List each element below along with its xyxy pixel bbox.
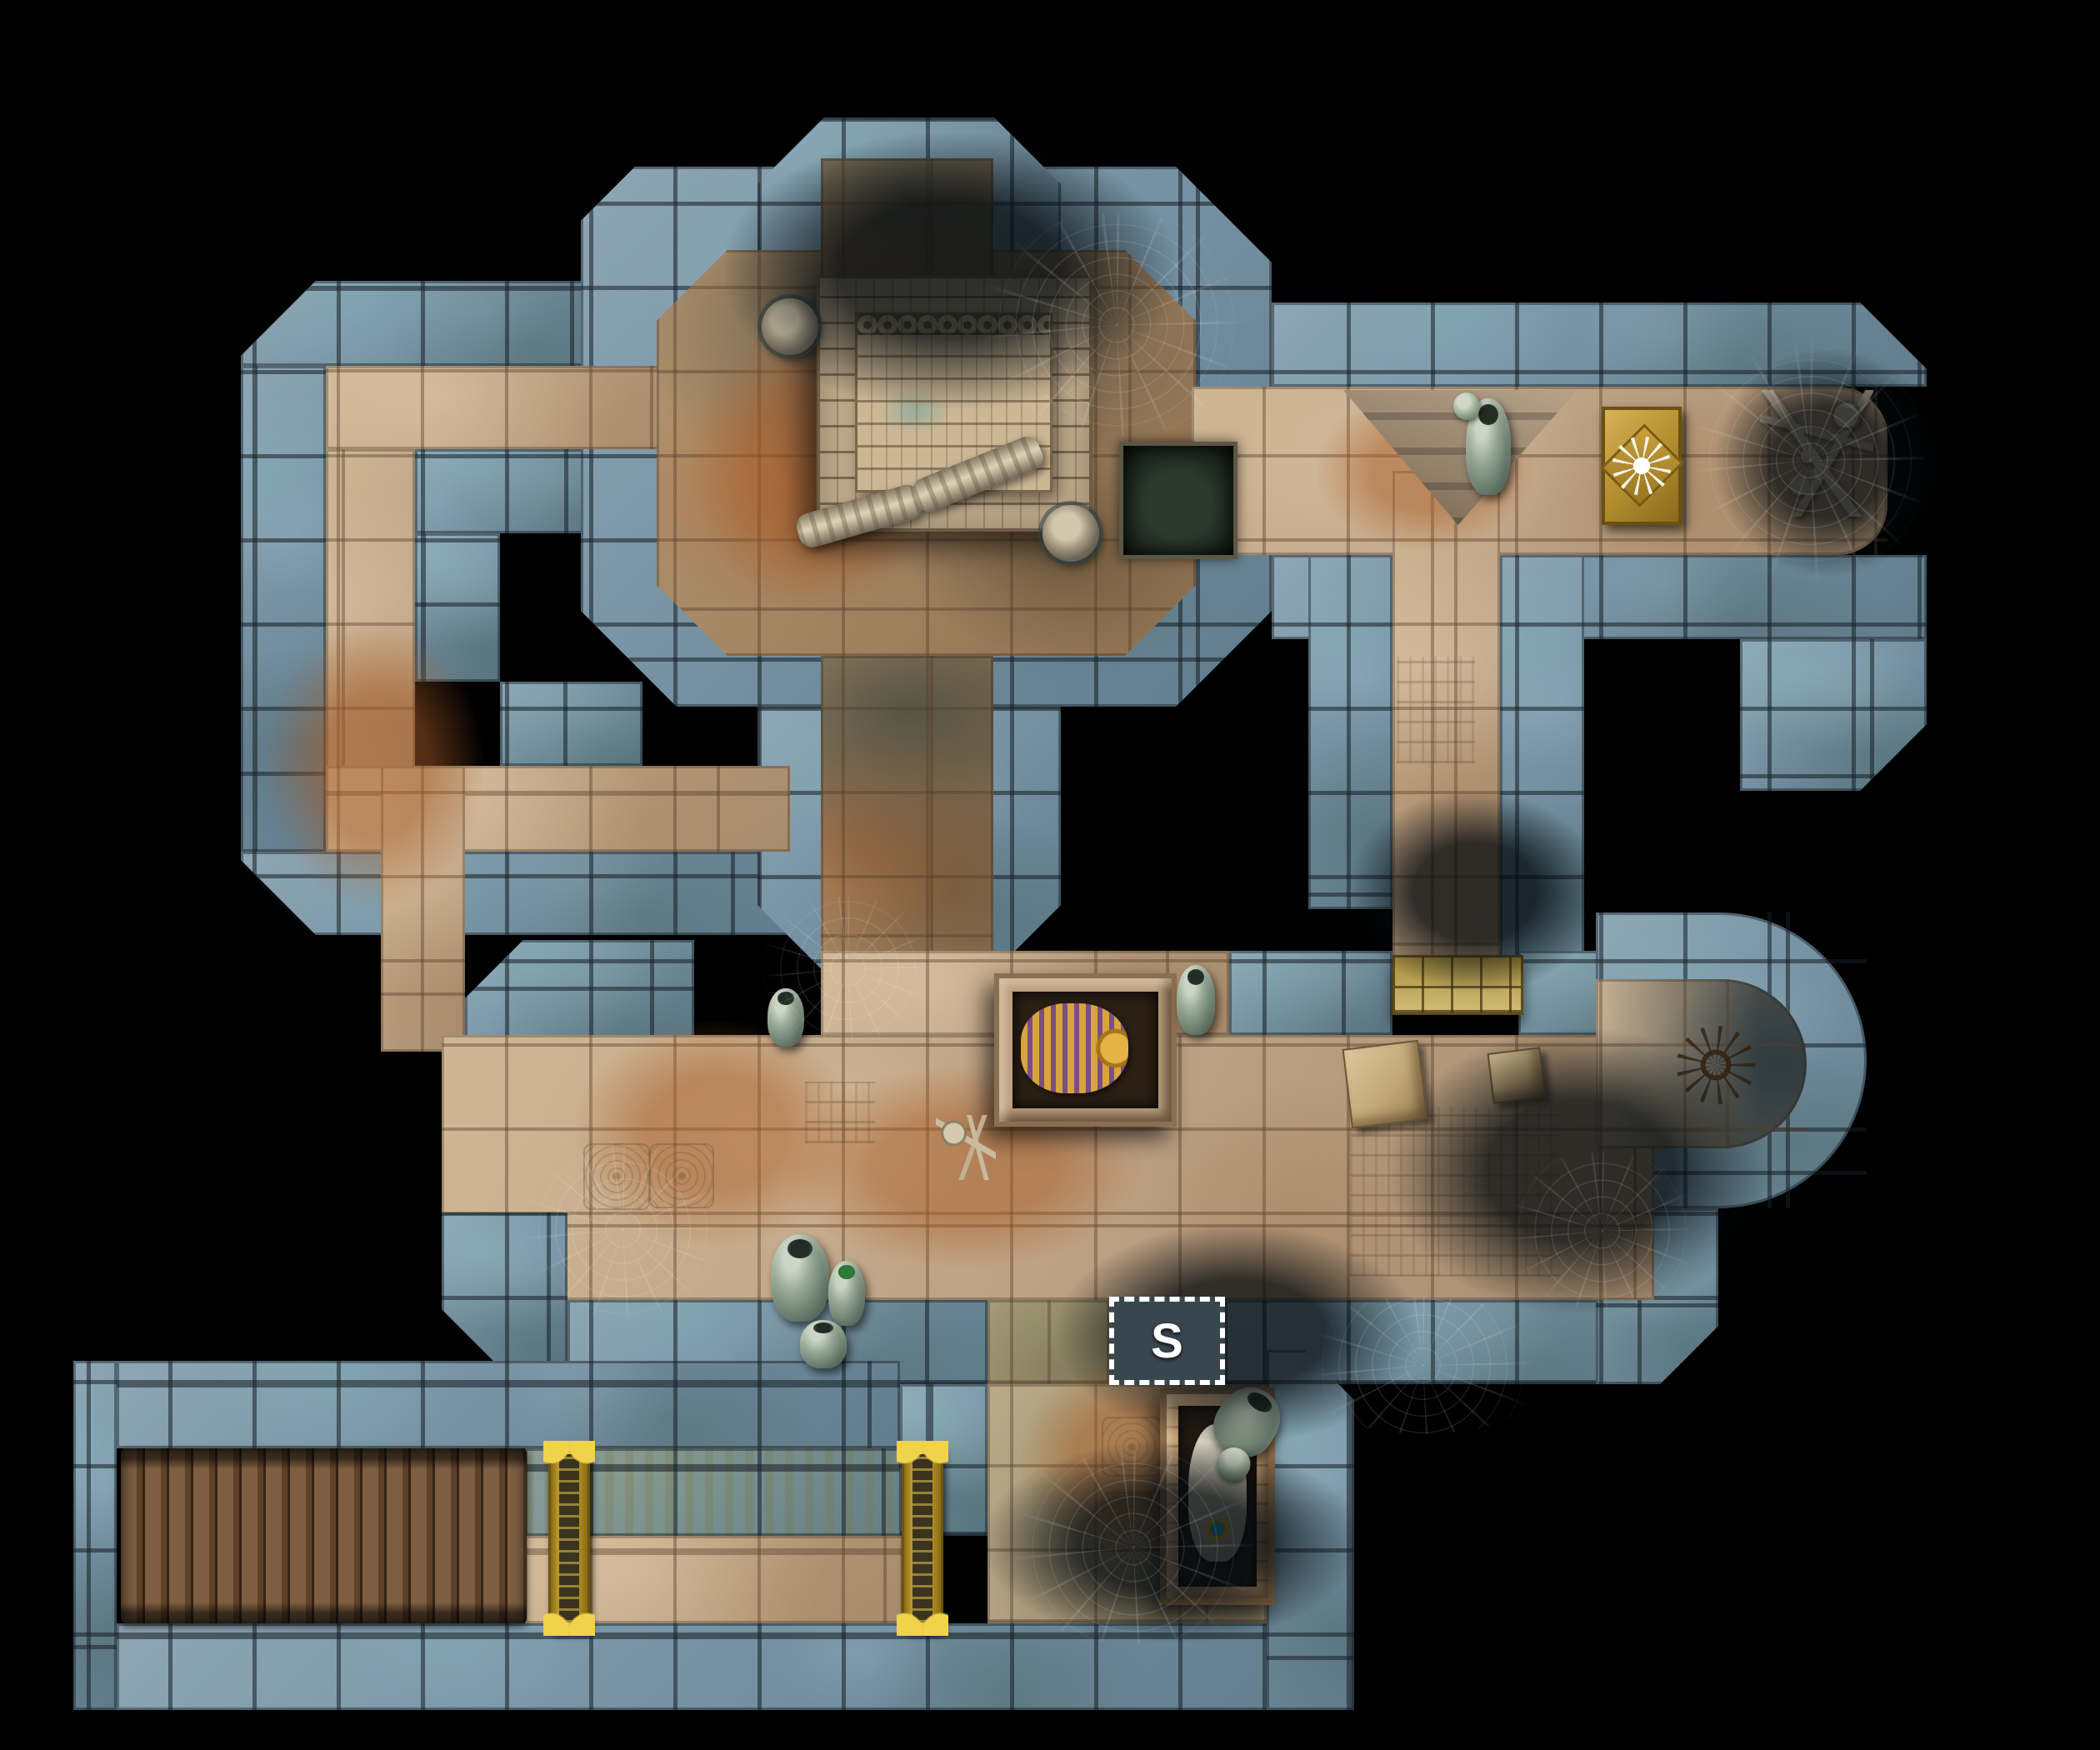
gate-bar-west [548,1444,590,1632]
junction-urn [1466,398,1511,495]
dungeon-map: S [0,0,2100,1750]
west-corridor-south-wall [117,1623,1354,1710]
floor-glyph-w [805,1082,875,1143]
ring-bottom-wall [241,852,803,935]
storage-urn-round [800,1320,847,1368]
floor-glyph-e [1350,1107,1560,1277]
crate-stack [1342,1040,1427,1128]
plank-bridge [121,1448,527,1623]
hall-north-wall-a [1229,951,1392,1035]
floor-rosette-c2 [1102,1492,1162,1552]
west-corridor-cap [73,1361,117,1710]
hall-west-urn [767,988,804,1047]
debris-slabs [998,1384,1122,1486]
hall-west-riser [442,1212,567,1384]
ring-inner-bottom-wall [500,682,642,766]
corridor-right-block [1740,639,1927,791]
floor-rosette-w1 [583,1143,650,1210]
ring-left-wall [241,366,326,852]
sun-plaque [1602,407,1682,525]
shaft-left-wall [1308,555,1392,909]
hall-west-wall [465,940,694,1052]
shaft-right-wall [1500,555,1584,993]
gate-bar-east [902,1444,943,1632]
west-corridor-north-wall [117,1361,900,1448]
secret-door-label: S [1151,1313,1183,1369]
crypt-link-floor [987,1300,1109,1384]
crypt-east-wall [1267,1350,1354,1710]
skeleton-remains [1760,390,1873,517]
dark-sun-engraving [1672,1021,1760,1109]
storage-urn-green [828,1261,865,1326]
secret-door-marker: S [1109,1297,1225,1385]
stone-disc-nw [762,298,818,355]
sarcophagus-urn [1177,965,1215,1035]
shaft-arch-tile [1397,657,1475,763]
broken-wall [1392,955,1523,1015]
floor-rosette-w2 [649,1143,714,1208]
corridor-top-wall [1272,302,1927,387]
ring-inner-left-wall [415,533,500,682]
chamber-south-floor [821,656,993,967]
rubble-stones [1477,1090,1552,1127]
ring-south-branch-floor [381,766,465,1052]
royal-sarcophagus [994,973,1177,1127]
pit-hole [1119,442,1237,559]
skull-and-hand [936,1115,996,1180]
storage-urn-large [771,1234,829,1322]
